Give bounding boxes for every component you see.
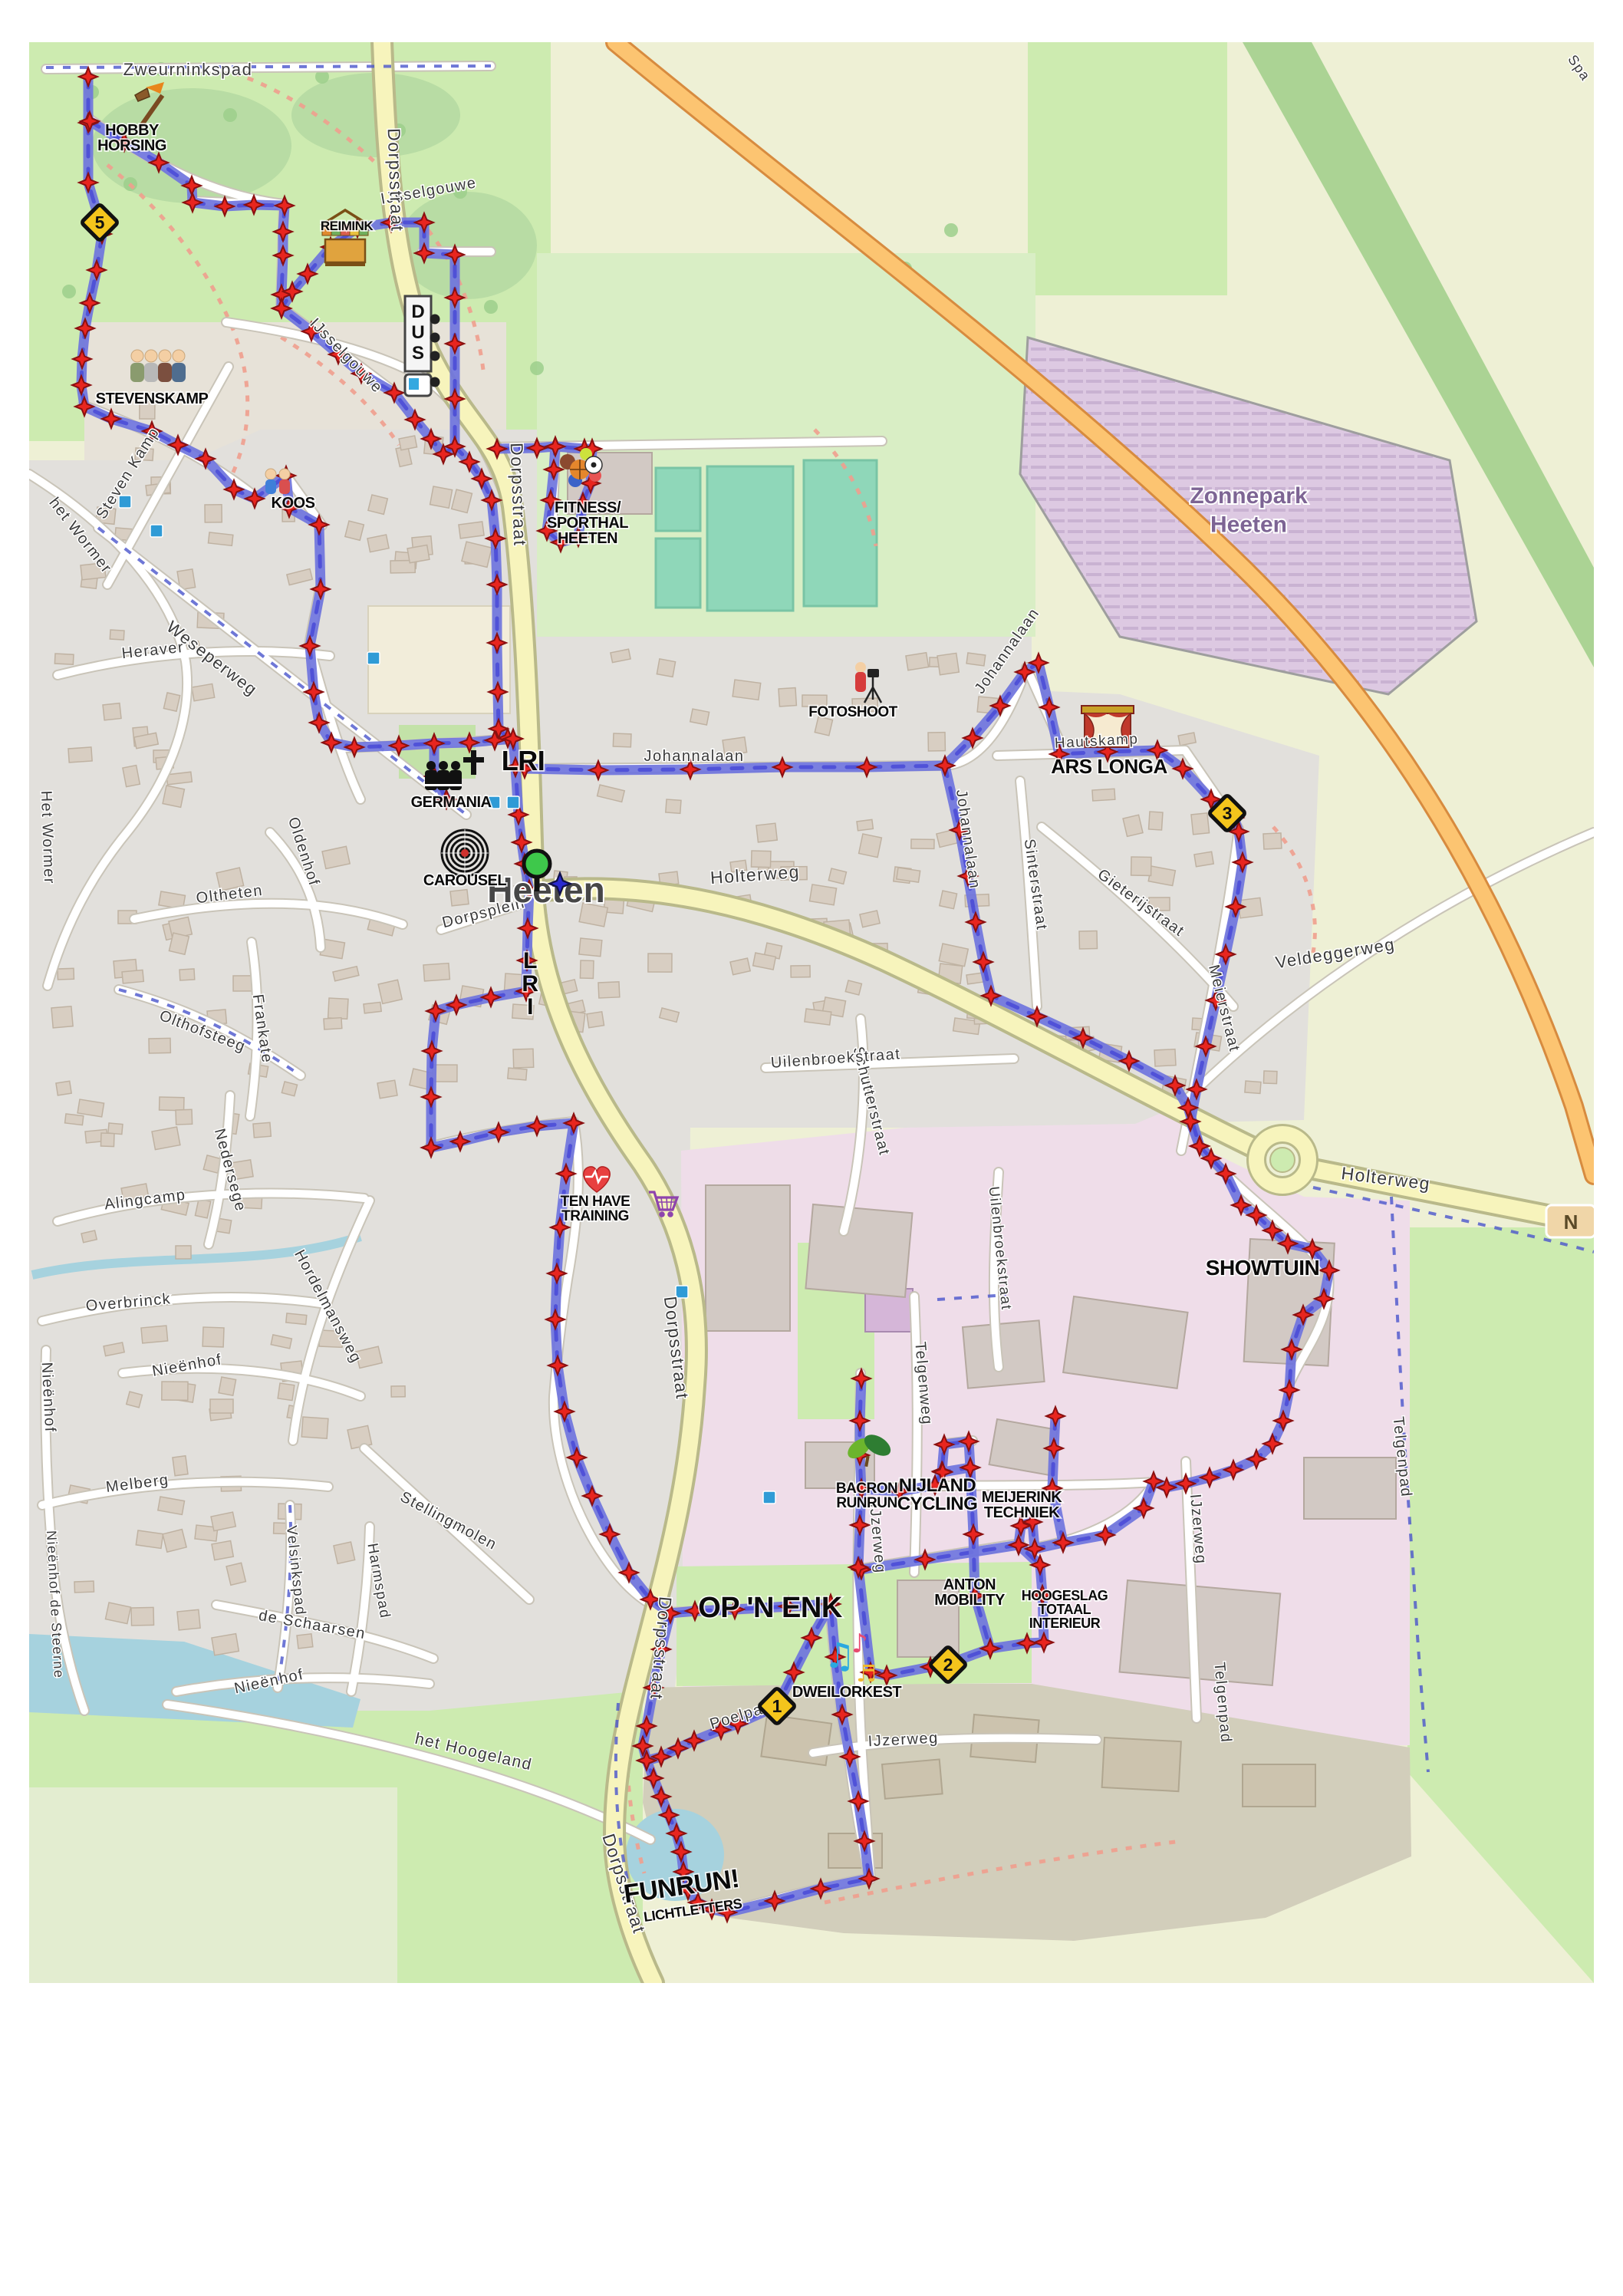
building [301, 1417, 328, 1438]
street-label: Het Wormer [38, 790, 58, 884]
building [324, 1018, 342, 1029]
building [123, 766, 140, 787]
building [51, 1006, 73, 1028]
building [690, 709, 709, 725]
place-label: Zonnepark [1190, 483, 1308, 509]
building [940, 891, 957, 909]
svg-text:♪: ♪ [851, 1629, 868, 1659]
building [58, 968, 74, 980]
poi-label-meijerink-techniek[interactable]: MEIJERINKTECHNIEK [982, 1489, 1062, 1521]
maze-icon[interactable] [441, 829, 489, 877]
building [219, 1377, 236, 1395]
svg-text:HOBBYHORSING: HOBBYHORSING [97, 122, 166, 154]
building [966, 653, 986, 666]
building [1191, 813, 1210, 835]
building [391, 1386, 405, 1397]
building [136, 1530, 163, 1548]
building [779, 688, 796, 707]
svg-text:S: S [412, 343, 424, 364]
building [1243, 1764, 1315, 1807]
building [809, 884, 836, 905]
building [598, 982, 620, 998]
svg-text:LRI: LRI [502, 745, 545, 776]
svg-text:TEN HAVETRAINING: TEN HAVETRAINING [561, 1194, 630, 1224]
svg-text:BACRONRUNRUN: BACRONRUNRUN [836, 1481, 897, 1511]
building [513, 1049, 534, 1068]
building [149, 1038, 170, 1053]
building [108, 1123, 123, 1135]
svg-text:NIJLANDCYCLING: NIJLANDCYCLING [897, 1475, 978, 1514]
building [450, 890, 469, 906]
svg-text:FOTOSHOOT: FOTOSHOOT [808, 704, 897, 720]
svg-text:FITNESS/SPORTHALHEETEN: FITNESS/SPORTHALHEETEN [547, 499, 628, 547]
building [859, 834, 882, 858]
building [963, 1320, 1045, 1388]
school-grounds [368, 606, 510, 713]
building [648, 954, 672, 972]
building [169, 933, 189, 954]
building [459, 522, 484, 539]
building [1154, 1049, 1176, 1066]
building [666, 799, 681, 813]
building [208, 532, 232, 545]
building [202, 1327, 224, 1347]
poi-label-anton-mobility[interactable]: ANTONMOBILITY [934, 1576, 1006, 1609]
building [334, 1542, 355, 1563]
building [580, 960, 594, 978]
building [176, 1246, 191, 1259]
building [897, 868, 920, 882]
building [65, 1114, 84, 1125]
svg-text:REIMINK: REIMINK [321, 219, 374, 233]
building [399, 436, 416, 450]
parking-icon[interactable] [763, 1491, 775, 1504]
building [1120, 1580, 1281, 1685]
svg-text:1: 1 [772, 1696, 782, 1716]
building [407, 545, 430, 563]
poi-label-dweilorkest[interactable]: DWEILORKEST [792, 1684, 902, 1701]
building [911, 839, 934, 848]
building [1263, 833, 1282, 849]
poi-label-reimink[interactable]: REIMINK [321, 219, 374, 233]
building [937, 653, 959, 674]
street-label: Zweurninkspad [123, 60, 253, 79]
road-shield: N [1546, 1205, 1595, 1237]
building [1149, 812, 1163, 830]
building [205, 505, 222, 522]
building [377, 1080, 397, 1099]
building [508, 1068, 527, 1080]
building [110, 630, 124, 640]
poi-label-bacron-runrun[interactable]: BACRONRUNRUN [836, 1481, 897, 1511]
building [364, 1002, 381, 1013]
tree-icon [944, 223, 958, 237]
poi-label-nijland-cycling[interactable]: NIJLANDCYCLING [897, 1475, 978, 1514]
building [805, 1009, 831, 1025]
tree-icon [223, 108, 237, 122]
building [54, 654, 74, 664]
svg-text:STEVENSKAMP: STEVENSKAMP [96, 390, 209, 407]
building [1102, 1738, 1181, 1791]
building [367, 535, 389, 552]
building [657, 659, 675, 677]
poi-label-koos[interactable]: KOOS [272, 495, 315, 512]
building [579, 938, 602, 957]
building [378, 980, 402, 1003]
building [253, 1122, 271, 1138]
street-label: Johannalaan [644, 748, 744, 765]
building [68, 747, 92, 763]
svg-text:ARS LONGA: ARS LONGA [1051, 755, 1167, 778]
svg-text:ANTONMOBILITY: ANTONMOBILITY [934, 1576, 1006, 1609]
building [761, 1715, 831, 1765]
building [706, 1185, 790, 1331]
building [74, 1581, 94, 1593]
svg-text:KOOS: KOOS [272, 495, 315, 512]
building [179, 969, 195, 980]
tree-icon [530, 361, 544, 375]
poi-label-ten-have-training[interactable]: TEN HAVETRAINING [561, 1194, 630, 1224]
svg-text:GERMANIA: GERMANIA [411, 794, 492, 811]
parking-icon[interactable] [507, 796, 519, 809]
building [1063, 1296, 1187, 1388]
poi-label-showtuin[interactable]: SHOWTUIN [1206, 1256, 1319, 1280]
tree-icon [62, 285, 76, 298]
building [176, 1109, 193, 1125]
building [100, 1133, 114, 1147]
building [141, 1326, 168, 1343]
building [152, 1127, 180, 1150]
building [928, 733, 945, 751]
building [328, 998, 348, 1019]
building [212, 1634, 239, 1655]
building [857, 819, 873, 830]
building [278, 1383, 295, 1400]
building [1092, 789, 1115, 801]
poi-label-op-n-enk[interactable]: OP 'N ENK [698, 1592, 843, 1624]
building [587, 1012, 604, 1028]
building [56, 1081, 71, 1095]
svg-text:3: 3 [1223, 803, 1233, 823]
poi-label-hobby-horsing[interactable]: HOBBYHORSING [97, 122, 166, 154]
start-pin[interactable] [524, 851, 550, 877]
building [173, 1456, 188, 1476]
poi-label-lri[interactable]: LRI [502, 745, 545, 776]
street-label: Dorpsstraat [507, 443, 531, 547]
poi-label-fotoshoot[interactable]: FOTOSHOOT [808, 704, 897, 720]
building [1131, 857, 1151, 875]
building [122, 970, 143, 983]
building [210, 1399, 233, 1413]
parking-icon[interactable] [150, 525, 163, 537]
building [1304, 1458, 1396, 1519]
svg-text:D: D [411, 301, 424, 322]
building [286, 1313, 307, 1325]
svg-text:U: U [411, 322, 424, 343]
svg-text:2: 2 [943, 1655, 953, 1675]
building [163, 786, 184, 807]
svg-text:N: N [1564, 1211, 1579, 1234]
building [281, 1082, 297, 1096]
building [1194, 852, 1213, 867]
building [368, 495, 387, 514]
building [906, 653, 929, 670]
place-label: Heeten [1210, 512, 1287, 538]
svg-text:OP 'N ENK: OP 'N ENK [698, 1592, 843, 1624]
building [160, 1097, 184, 1111]
building [163, 1530, 186, 1553]
building [162, 1382, 188, 1400]
building [131, 1607, 154, 1626]
building [177, 1609, 200, 1630]
building [1263, 1071, 1277, 1084]
poi-label-carousel[interactable]: CAROUSEL [423, 872, 507, 889]
tree-icon [484, 300, 498, 314]
poi-label-germania[interactable]: GERMANIA [411, 794, 492, 811]
building [882, 1759, 943, 1798]
map-page: DUS♫♪♬ ZweurninkspadIJsselgouweIJsselgou… [0, 0, 1623, 2296]
building [756, 823, 777, 842]
svg-text:DWEILORKEST: DWEILORKEST [792, 1684, 902, 1701]
svg-text:MEIJERINKTECHNIEK: MEIJERINKTECHNIEK [982, 1489, 1062, 1521]
building [805, 1204, 912, 1297]
building [1245, 1081, 1261, 1093]
building [127, 1392, 143, 1408]
svg-text:SHOWTUIN: SHOWTUIN [1206, 1256, 1319, 1280]
parking-icon[interactable] [367, 652, 380, 664]
poi-label-ars-longa[interactable]: ARS LONGA [1051, 755, 1167, 778]
building [103, 703, 121, 720]
svg-text:5: 5 [95, 212, 105, 232]
svg-text:CAROUSEL: CAROUSEL [423, 872, 507, 889]
building [613, 733, 631, 747]
building [732, 680, 761, 700]
building [163, 693, 179, 711]
building [297, 1634, 313, 1649]
building [1079, 931, 1097, 949]
sports-pitch [707, 466, 793, 611]
building [1123, 815, 1143, 836]
building [212, 1540, 233, 1560]
poi-label-stevenskamp[interactable]: STEVENSKAMP [96, 390, 209, 407]
building [192, 684, 215, 700]
building [791, 966, 810, 977]
building [430, 486, 453, 508]
building [345, 521, 364, 540]
poi-label-fitness-sporthal-heeten[interactable]: FITNESS/SPORTHALHEETEN [547, 499, 628, 547]
street-label: Dorpsstraat [384, 128, 408, 232]
building [423, 964, 449, 981]
